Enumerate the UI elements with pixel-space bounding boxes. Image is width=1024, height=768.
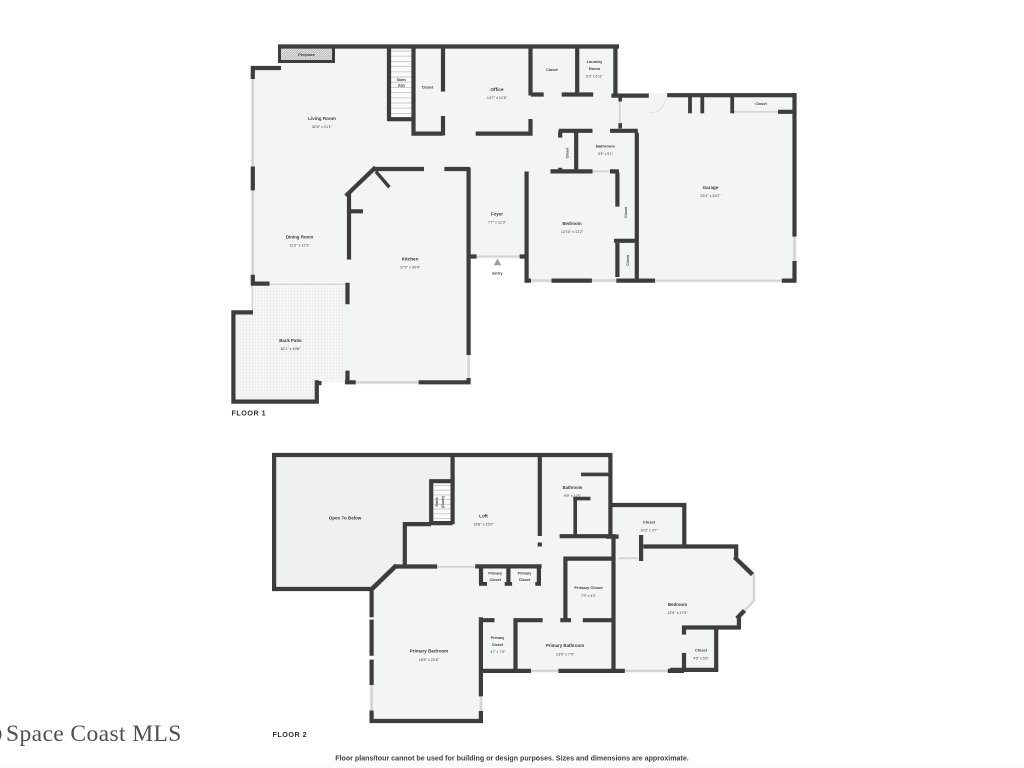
svg-text:32'8" x 21'1": 32'8" x 21'1" [312, 125, 333, 129]
svg-text:14'7" x 12'5": 14'7" x 12'5" [487, 96, 508, 100]
svg-text:Foyer: Foyer [491, 212, 503, 217]
svg-text:Kitchen: Kitchen [402, 257, 419, 262]
svg-text:9'3" x 6'11": 9'3" x 6'11" [586, 75, 603, 79]
svg-text:FLOOR 2: FLOOR 2 [273, 730, 308, 739]
svg-text:7'7" x 11'3": 7'7" x 11'3" [488, 221, 507, 225]
svg-text:23'4" x 24'2": 23'4" x 24'2" [700, 194, 721, 198]
svg-text:Primary: Primary [491, 636, 506, 640]
svg-text:Fireplace: Fireplace [298, 53, 315, 57]
svg-text:Bedroom: Bedroom [668, 602, 687, 607]
svg-text:Primary Bedroom: Primary Bedroom [410, 649, 449, 654]
svg-text:Garage: Garage [703, 185, 719, 190]
svg-text:Open To Below: Open To Below [329, 516, 362, 521]
svg-text:9'9" x 11'5": 9'9" x 11'5" [564, 494, 582, 498]
svg-text:Primary: Primary [518, 572, 533, 576]
svg-text:16'1" x 19'8": 16'1" x 19'8" [280, 347, 301, 351]
svg-text:12'10" x 13'2": 12'10" x 13'2" [561, 230, 584, 234]
svg-text:Primary Closet: Primary Closet [574, 585, 603, 590]
svg-text:Closet: Closet [490, 578, 502, 582]
svg-text:19'8" x 15'9": 19'8" x 15'9" [473, 523, 494, 527]
svg-text:Primary Bathroom: Primary Bathroom [546, 643, 584, 648]
svg-text:Loft: Loft [479, 514, 488, 519]
svg-text:Floor plans/tour cannot be use: Floor plans/tour cannot be used for buil… [335, 755, 689, 763]
svg-text:Closet: Closet [755, 102, 767, 106]
svg-text:Primary: Primary [488, 572, 503, 576]
svg-text:12'3" x 12'3": 12'3" x 12'3" [289, 244, 310, 248]
svg-text:Closet: Closet [519, 578, 531, 582]
svg-text:Back Patio: Back Patio [279, 338, 302, 343]
svg-text:4'7" x 7'5": 4'7" x 7'5" [490, 650, 506, 654]
svg-text:Stairs: Stairs [397, 78, 407, 82]
svg-text:Bathroom: Bathroom [596, 144, 615, 149]
svg-text:13'9" x 7'9": 13'9" x 7'9" [556, 653, 575, 657]
svg-text:Stairs: Stairs [435, 497, 439, 507]
svg-text:13'5" x 17'6": 13'5" x 17'6" [667, 611, 688, 615]
svg-text:Dining Room: Dining Room [286, 235, 313, 240]
svg-text:Entry: Entry [492, 271, 503, 276]
svg-text:Office: Office [490, 87, 503, 92]
svg-text:FLOOR 1: FLOOR 1 [232, 409, 267, 418]
svg-text:Room: Room [589, 66, 601, 71]
svg-text:Living Room: Living Room [308, 116, 336, 121]
svg-text:(Down): (Down) [441, 496, 445, 508]
svg-text:16'5" x 22'6": 16'5" x 22'6" [419, 658, 440, 662]
svg-text:8'6" x 5'1": 8'6" x 5'1" [598, 152, 614, 156]
svg-text:(Up): (Up) [398, 84, 405, 88]
svg-text:Closet: Closet [546, 68, 558, 72]
svg-text:Bathroom: Bathroom [563, 485, 583, 490]
svg-text:Closet: Closet [624, 206, 628, 218]
svg-text:7'9" x 4'2": 7'9" x 4'2" [581, 594, 597, 598]
svg-text:4'5" x 5'9": 4'5" x 5'9" [693, 657, 709, 661]
svg-text:Bedroom: Bedroom [562, 221, 581, 226]
svg-text:Closet: Closet [695, 648, 708, 653]
svg-text:Space Coast MLS: Space Coast MLS [6, 721, 182, 747]
svg-text:Laundry: Laundry [587, 59, 604, 64]
svg-text:Closet: Closet [492, 643, 504, 647]
svg-text:17'2" x 30'4": 17'2" x 30'4" [400, 266, 421, 270]
svg-text:Closet: Closet [565, 147, 569, 159]
svg-text:Closet: Closet [643, 520, 656, 525]
svg-text:Closet: Closet [422, 86, 434, 90]
svg-text:Closet: Closet [626, 254, 630, 266]
svg-text:10'3" x 3'7": 10'3" x 3'7" [640, 529, 658, 533]
